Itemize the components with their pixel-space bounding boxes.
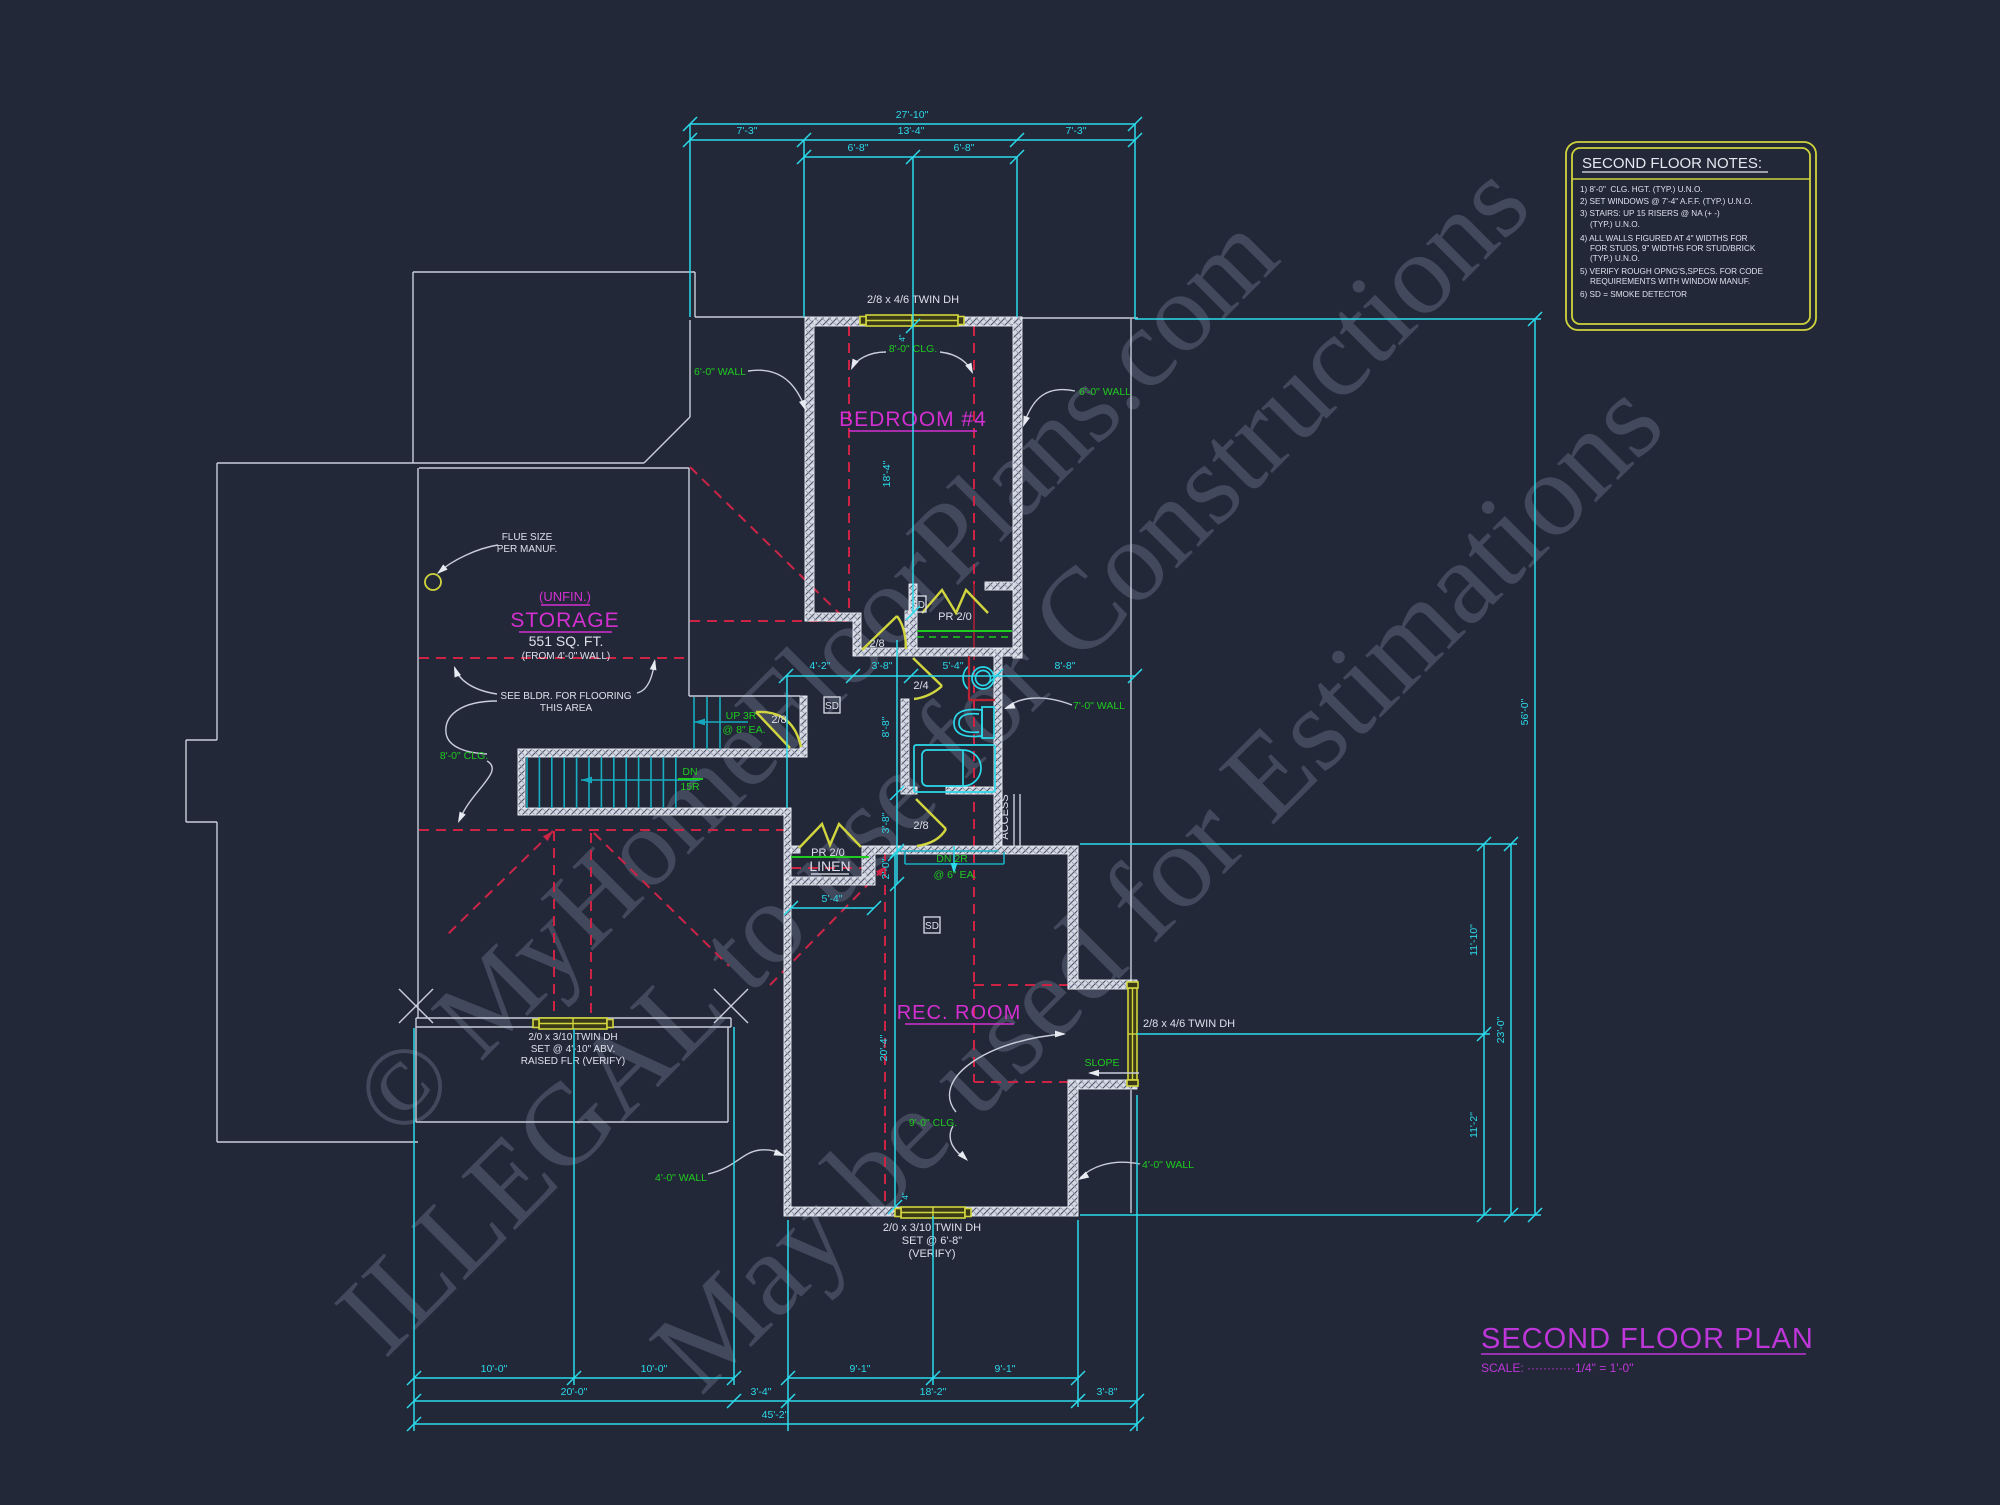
svg-text:FOR STUDS, 9" WIDTHS FOR STUD/: FOR STUDS, 9" WIDTHS FOR STUD/BRICK [1590, 244, 1756, 253]
svg-text:2/0 x 3/10 TWIN DH: 2/0 x 3/10 TWIN DH [883, 1222, 981, 1234]
svg-text:4'-0" WALL: 4'-0" WALL [655, 1172, 707, 1184]
svg-text:5'-4": 5'-4" [943, 660, 964, 672]
svg-text:11'-2": 11'-2" [1468, 1112, 1480, 1138]
svg-text:(TYP.) U.N.O.: (TYP.) U.N.O. [1590, 254, 1640, 263]
svg-text:3'-8": 3'-8" [1097, 1386, 1118, 1398]
svg-text:SECOND FLOOR NOTES:: SECOND FLOOR NOTES: [1582, 155, 1762, 172]
svg-text:2/4: 2/4 [913, 680, 928, 692]
svg-text:UP 3R: UP 3R [726, 710, 757, 722]
svg-text:PR 2/0: PR 2/0 [811, 847, 845, 859]
svg-text:8'-8": 8'-8" [1055, 660, 1076, 672]
svg-text:PR 2/0: PR 2/0 [938, 611, 972, 623]
svg-text:6'-8": 6'-8" [954, 142, 975, 154]
svg-text:4'-2": 4'-2" [810, 660, 831, 672]
svg-text:4) ALL WALLS FIGURED AT 4" WID: 4) ALL WALLS FIGURED AT 4" WIDTHS FOR [1580, 234, 1748, 243]
svg-text:4'-0" WALL: 4'-0" WALL [1142, 1159, 1194, 1171]
svg-text:10'-0": 10'-0" [481, 1363, 508, 1375]
svg-text:2/0 x 3/10 TWIN DH: 2/0 x 3/10 TWIN DH [528, 1032, 617, 1043]
svg-text:SET @ 4'-10" ABV.: SET @ 4'-10" ABV. [531, 1044, 616, 1055]
svg-text:23'-0": 23'-0" [1495, 1016, 1507, 1043]
svg-text:8'-0" CLG.: 8'-0" CLG. [440, 750, 488, 762]
svg-text:15R: 15R [680, 781, 700, 793]
svg-text:2/8: 2/8 [771, 714, 786, 726]
svg-text:2/8 x 4/6 TWIN DH: 2/8 x 4/6 TWIN DH [1143, 1018, 1235, 1030]
svg-text:3) STAIRS: UP 15 RISERS @ NA (: 3) STAIRS: UP 15 RISERS @ NA (+ -) [1580, 209, 1720, 218]
svg-text:5'-4": 5'-4" [822, 893, 843, 905]
svg-text:4": 4" [901, 1192, 910, 1199]
svg-text:2) SET WINDOWS @ 7'-4" A.F.F.: 2) SET WINDOWS @ 7'-4" A.F.F. (TYP.) U.N… [1580, 197, 1753, 206]
svg-text:(TYP.) U.N.O.: (TYP.) U.N.O. [1590, 220, 1640, 229]
svg-text:SECOND FLOOR PLAN: SECOND FLOOR PLAN [1481, 1323, 1814, 1355]
svg-text:(VERIFY): (VERIFY) [908, 1248, 955, 1260]
svg-text:10'-0": 10'-0" [641, 1363, 668, 1375]
svg-text:7'-3": 7'-3" [1066, 125, 1087, 137]
svg-text:45'-2": 45'-2" [762, 1409, 789, 1421]
svg-text:STORAGE: STORAGE [510, 609, 619, 632]
svg-text:6) SD = SMOKE DETECTOR: 6) SD = SMOKE DETECTOR [1580, 290, 1687, 299]
svg-text:DN 2R: DN 2R [936, 853, 968, 865]
svg-text:5) VERIFY ROUGH OPNG'S,SPECS.: 5) VERIFY ROUGH OPNG'S,SPECS. FOR CODE [1580, 267, 1763, 276]
svg-text:11'-10": 11'-10" [1468, 924, 1480, 956]
svg-text:(FROM 4'-0" WALL): (FROM 4'-0" WALL) [522, 651, 610, 662]
svg-text:REC. ROOM: REC. ROOM [897, 1002, 1022, 1024]
svg-text:6'-8": 6'-8" [848, 142, 869, 154]
svg-text:PER MANUF.: PER MANUF. [497, 544, 558, 555]
svg-text:6'-0" WALL: 6'-0" WALL [694, 366, 746, 378]
svg-text:18'-4": 18'-4" [881, 460, 893, 487]
svg-text:8'-8": 8'-8" [880, 716, 892, 737]
svg-text:2/8: 2/8 [869, 638, 884, 650]
svg-text:9'-1": 9'-1" [850, 1363, 871, 1375]
svg-text:@ 6" EA.: @ 6" EA. [934, 869, 977, 881]
svg-text:18'-2": 18'-2" [920, 1386, 947, 1398]
svg-text:3'-4": 3'-4" [751, 1386, 772, 1398]
svg-text:7'-0" WALL: 7'-0" WALL [1073, 700, 1125, 712]
svg-text:13'-4": 13'-4" [898, 125, 925, 137]
svg-text:DN: DN [682, 766, 697, 778]
svg-text:FLUE SIZE: FLUE SIZE [502, 532, 553, 543]
svg-text:SLOPE: SLOPE [1084, 1057, 1119, 1069]
svg-text:RAISED FLR (VERIFY): RAISED FLR (VERIFY) [521, 1056, 625, 1067]
svg-text:6'-0" WALL: 6'-0" WALL [1079, 386, 1131, 398]
svg-text:2'-0": 2'-0" [880, 858, 892, 879]
svg-text:20'-0": 20'-0" [561, 1386, 588, 1398]
svg-text:THIS AREA: THIS AREA [540, 703, 593, 714]
svg-text:551 SQ. FT.: 551 SQ. FT. [529, 633, 604, 649]
svg-text:7'-3": 7'-3" [737, 125, 758, 137]
svg-text:9'-0" CLG.: 9'-0" CLG. [909, 1117, 957, 1129]
svg-text:SD: SD [825, 701, 839, 712]
svg-text:@ 8" EA.: @ 8" EA. [723, 724, 766, 736]
svg-text:SET @ 6'-8": SET @ 6'-8" [902, 1235, 962, 1247]
svg-text:56'-0": 56'-0" [1519, 698, 1531, 725]
svg-text:REQUIREMENTS WITH WINDOW MANUF: REQUIREMENTS WITH WINDOW MANUF. [1590, 277, 1750, 286]
svg-text:(UNFIN.): (UNFIN.) [539, 589, 591, 604]
svg-text:3'-8": 3'-8" [880, 812, 892, 833]
svg-text:LINEN: LINEN [809, 858, 850, 874]
svg-text:ACCESS: ACCESS [999, 794, 1011, 839]
svg-text:27'-10": 27'-10" [896, 109, 929, 121]
svg-text:9'-1": 9'-1" [995, 1363, 1016, 1375]
svg-text:1) 8'-0" CLG. HGT. (TYP.) U.N: 1) 8'-0" CLG. HGT. (TYP.) U.N.O. [1580, 185, 1703, 194]
svg-text:20'-4": 20'-4" [878, 1034, 890, 1061]
svg-text:4": 4" [898, 334, 907, 341]
svg-text:SCALE: ············1/4" = 1'-0: SCALE: ············1/4" = 1'-0" [1481, 1361, 1633, 1375]
svg-text:2/8: 2/8 [913, 820, 928, 832]
svg-text:3'-8": 3'-8" [872, 660, 893, 672]
svg-text:SEE BLDR. FOR FLOORING: SEE BLDR. FOR FLOORING [500, 691, 631, 702]
svg-text:SD: SD [925, 921, 939, 932]
